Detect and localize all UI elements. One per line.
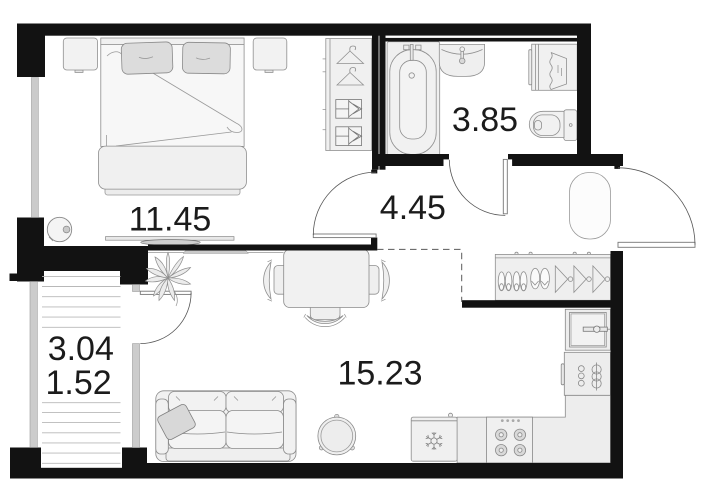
- svg-text:3.85: 3.85: [452, 101, 518, 139]
- svg-text:4.45: 4.45: [380, 189, 446, 227]
- svg-text:11.45: 11.45: [129, 201, 212, 239]
- svg-text:3.04: 3.04: [48, 330, 114, 368]
- svg-text:15.23: 15.23: [337, 354, 422, 392]
- svg-text:1.52: 1.52: [46, 364, 112, 402]
